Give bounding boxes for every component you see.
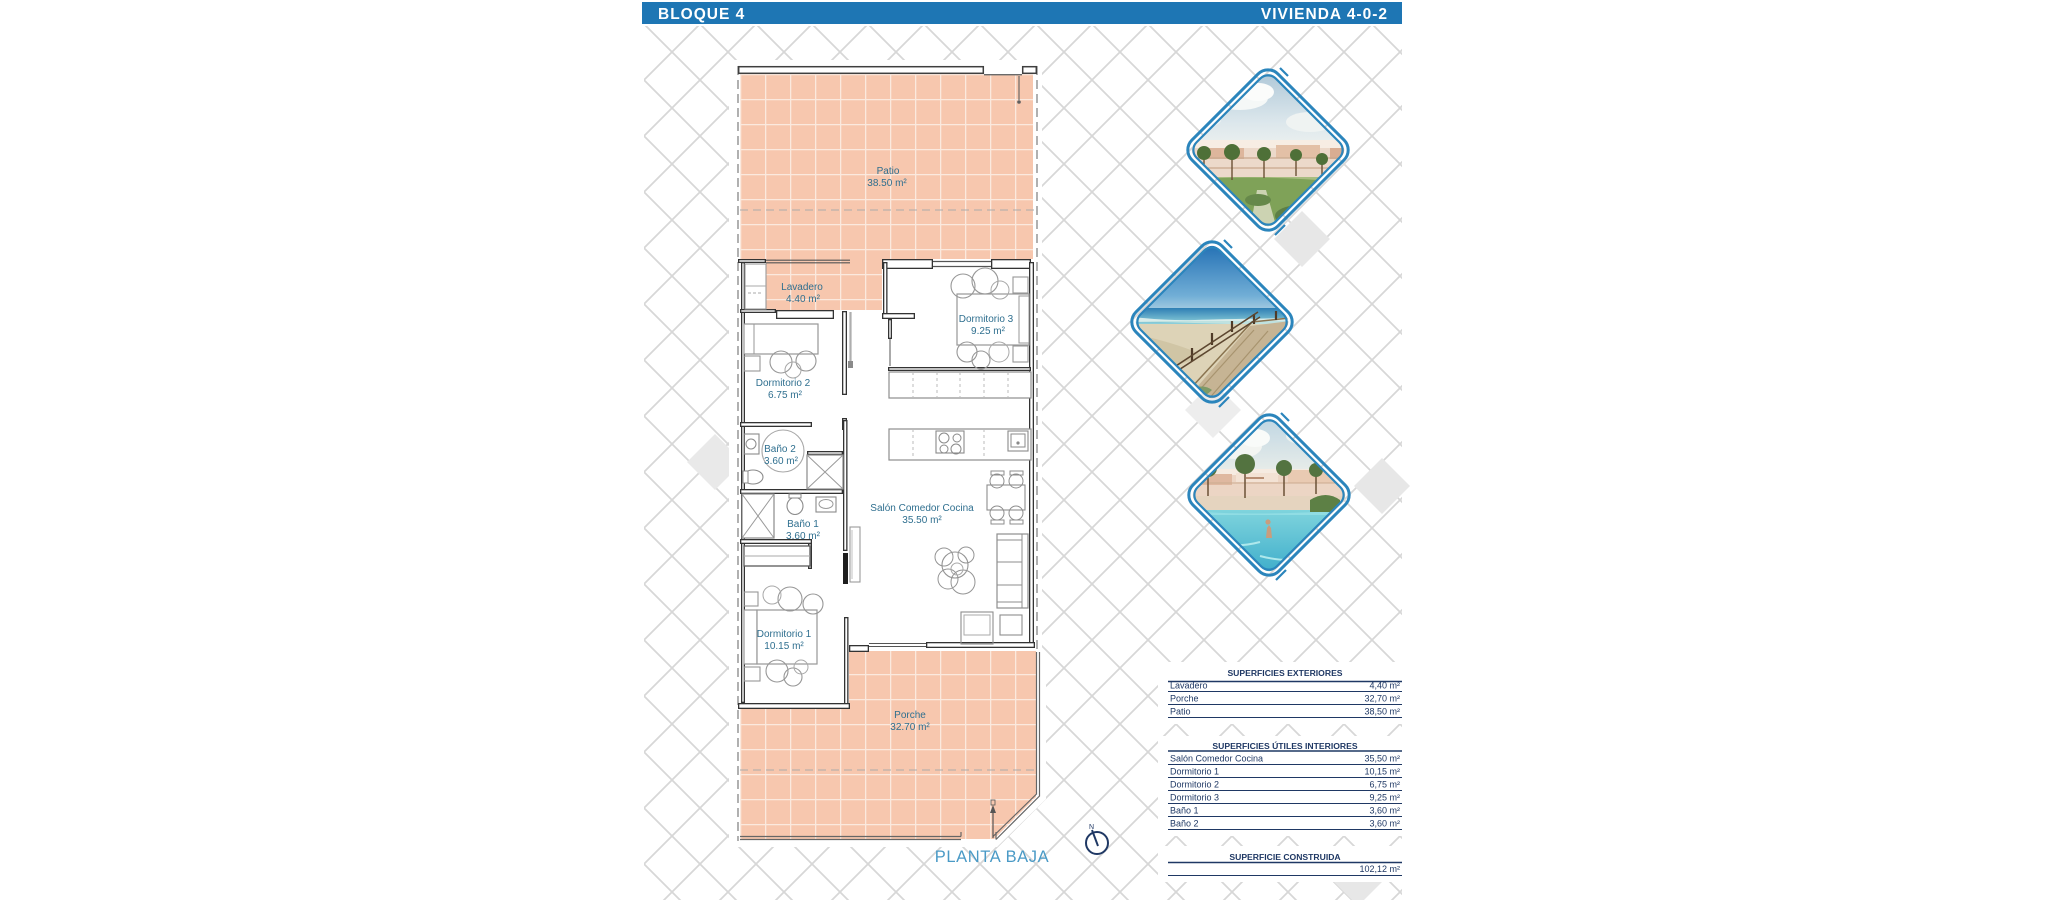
svg-text:Salón Comedor Cocina: Salón Comedor Cocina bbox=[1170, 754, 1263, 764]
svg-text:4,40 m²: 4,40 m² bbox=[1369, 681, 1400, 691]
svg-text:Porche: Porche bbox=[1170, 694, 1199, 704]
svg-text:3.60 m²: 3.60 m² bbox=[786, 531, 821, 542]
svg-text:6,75 m²: 6,75 m² bbox=[1369, 780, 1400, 790]
svg-text:Baño 1: Baño 1 bbox=[1170, 806, 1199, 816]
svg-text:Dormitorio 1: Dormitorio 1 bbox=[757, 629, 812, 640]
svg-text:32,70 m²: 32,70 m² bbox=[1364, 694, 1400, 704]
svg-text:9,25 m²: 9,25 m² bbox=[1369, 793, 1400, 803]
svg-text:38,50 m²: 38,50 m² bbox=[1364, 707, 1400, 717]
svg-text:35,50 m²: 35,50 m² bbox=[1364, 754, 1400, 764]
svg-text:Baño 2: Baño 2 bbox=[764, 444, 796, 455]
svg-text:VIVIENDA 4-0-2: VIVIENDA 4-0-2 bbox=[1261, 6, 1388, 23]
svg-text:Patio: Patio bbox=[877, 166, 900, 177]
svg-text:Dormitorio 1: Dormitorio 1 bbox=[1170, 767, 1219, 777]
svg-text:102,12 m²: 102,12 m² bbox=[1359, 864, 1400, 874]
svg-text:32.70 m²: 32.70 m² bbox=[890, 722, 930, 733]
svg-text:3.60 m²: 3.60 m² bbox=[764, 456, 799, 467]
svg-text:PLANTA BAJA: PLANTA BAJA bbox=[935, 848, 1050, 866]
svg-text:4.40 m²: 4.40 m² bbox=[786, 294, 821, 305]
svg-text:Porche: Porche bbox=[894, 710, 926, 721]
svg-text:3,60 m²: 3,60 m² bbox=[1369, 819, 1400, 829]
svg-text:9.25 m²: 9.25 m² bbox=[971, 326, 1006, 337]
svg-text:N: N bbox=[1089, 824, 1094, 831]
svg-text:38.50 m²: 38.50 m² bbox=[867, 178, 907, 189]
svg-text:Dormitorio 3: Dormitorio 3 bbox=[959, 314, 1014, 325]
svg-text:Baño 2: Baño 2 bbox=[1170, 819, 1199, 829]
svg-text:6.75 m²: 6.75 m² bbox=[768, 390, 803, 401]
svg-text:SUPERFICIES ÚTILES INTERIORES: SUPERFICIES ÚTILES INTERIORES bbox=[1212, 740, 1357, 751]
svg-text:10,15 m²: 10,15 m² bbox=[1364, 767, 1400, 777]
svg-text:Baño 1: Baño 1 bbox=[787, 519, 819, 530]
svg-text:Dormitorio 3: Dormitorio 3 bbox=[1170, 793, 1219, 803]
svg-text:3,60 m²: 3,60 m² bbox=[1369, 806, 1400, 816]
svg-text:Lavadero: Lavadero bbox=[781, 282, 823, 293]
svg-text:10.15 m²: 10.15 m² bbox=[764, 641, 804, 652]
svg-text:Dormitorio 2: Dormitorio 2 bbox=[1170, 780, 1219, 790]
svg-text:Dormitorio 2: Dormitorio 2 bbox=[756, 378, 811, 389]
svg-text:35.50 m²: 35.50 m² bbox=[902, 515, 942, 526]
svg-text:SUPERFICIE CONSTRUIDA: SUPERFICIE CONSTRUIDA bbox=[1229, 852, 1340, 862]
svg-text:BLOQUE 4: BLOQUE 4 bbox=[658, 6, 745, 23]
svg-text:Salón Comedor Cocina: Salón Comedor Cocina bbox=[870, 503, 974, 514]
svg-text:Lavadero: Lavadero bbox=[1170, 681, 1208, 691]
svg-text:SUPERFICIES EXTERIORES: SUPERFICIES EXTERIORES bbox=[1227, 668, 1342, 678]
svg-text:Patio: Patio bbox=[1170, 707, 1191, 717]
